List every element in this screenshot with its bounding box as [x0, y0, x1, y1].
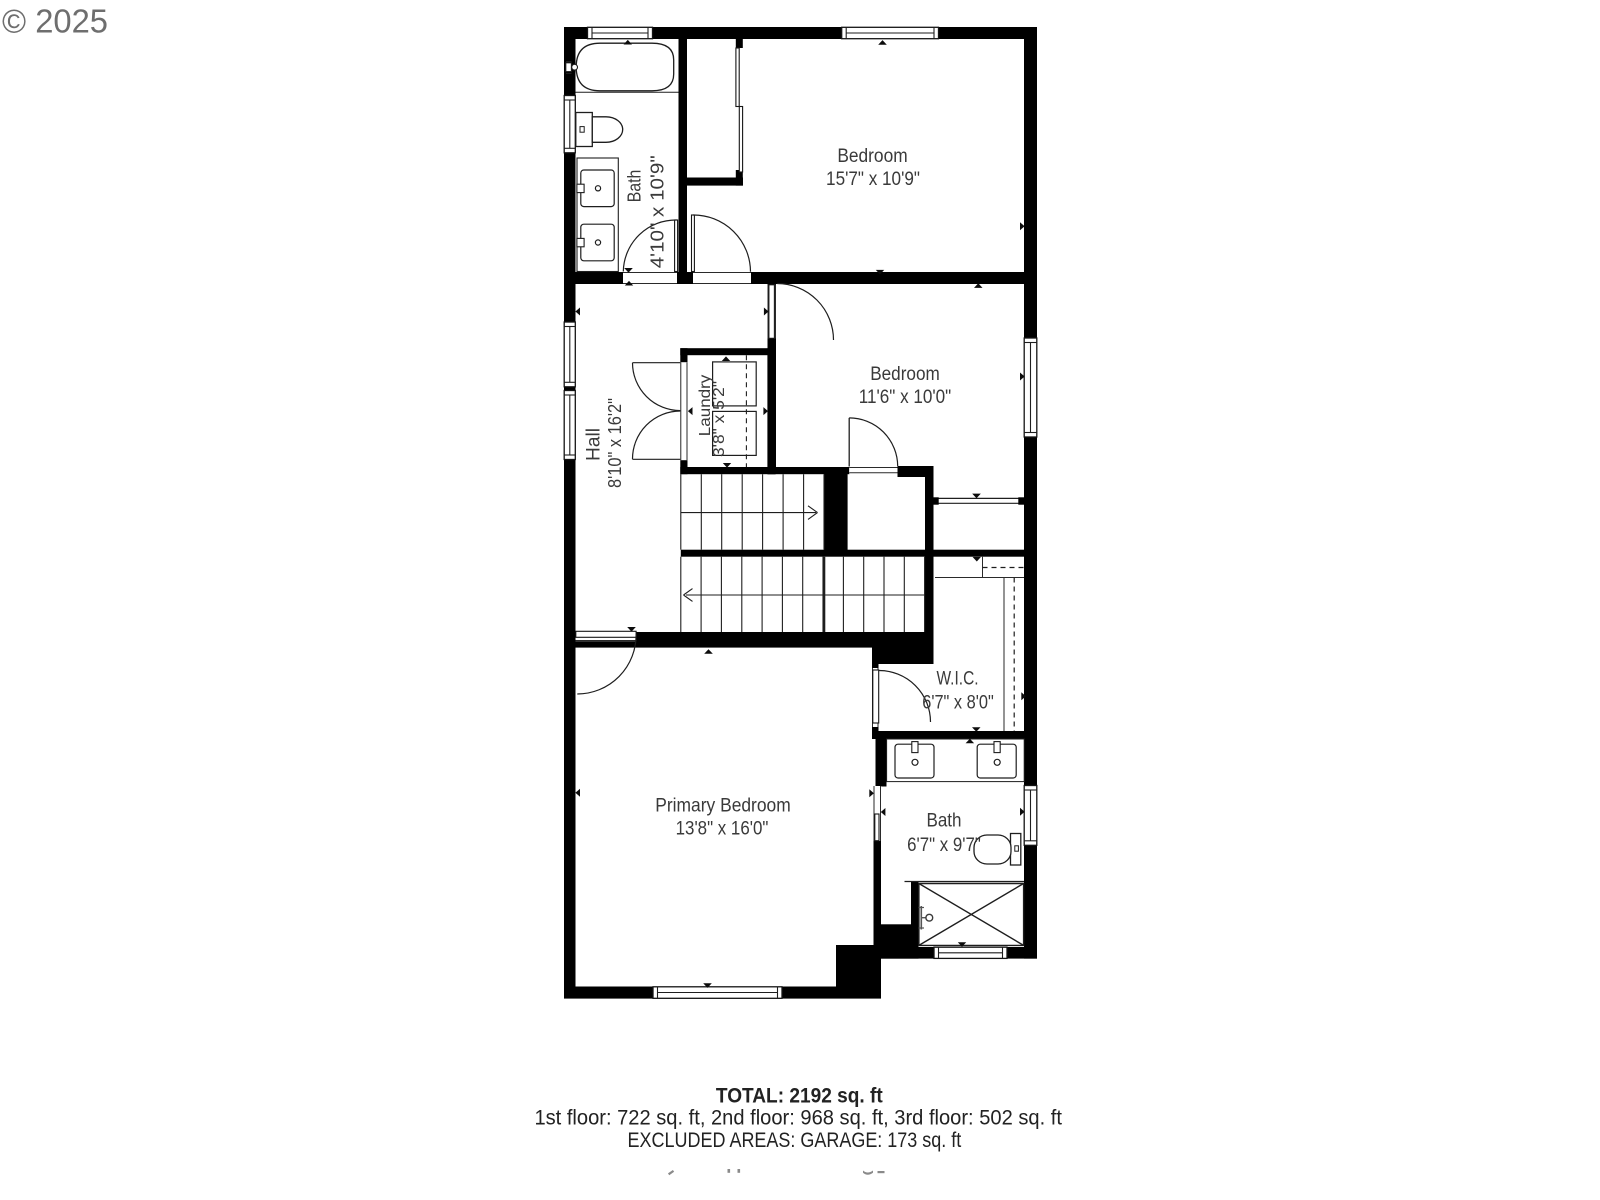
svg-text:13'8" x 16'0": 13'8" x 16'0" [676, 819, 769, 840]
svg-text:Hall: Hall [584, 428, 605, 461]
svg-text:11'6" x 10'0": 11'6" x 10'0" [859, 387, 952, 408]
svg-text:15'7" x 10'9": 15'7" x 10'9" [826, 169, 920, 190]
svg-text:Bedroom: Bedroom [870, 364, 940, 385]
svg-text:EXCLUDED AREAS: GARAGE: 173 sq: EXCLUDED AREAS: GARAGE: 173 sq. ft [628, 1129, 962, 1152]
svg-text:Bath: Bath [625, 170, 645, 203]
svg-text:Primary Bedroom: Primary Bedroom [655, 796, 791, 817]
svg-text:4'10" x 10'9": 4'10" x 10'9" [648, 155, 668, 268]
svg-text:3'8" x 5'2": 3'8" x 5'2" [711, 381, 728, 457]
svg-text:W.I.C.: W.I.C. [936, 669, 978, 690]
svg-text:TOTAL: 2192 sq. ft: TOTAL: 2192 sq. ft [716, 1085, 883, 1108]
svg-text:6'7" x 8'0": 6'7" x 8'0" [922, 693, 994, 714]
svg-text:Bath: Bath [927, 811, 962, 832]
svg-text:8'10" x 16'2": 8'10" x 16'2" [605, 398, 625, 488]
svg-text:Bedroom: Bedroom [837, 146, 907, 167]
svg-text:1st floor: 722 sq. ft, 2nd flo: 1st floor: 722 sq. ft, 2nd floor: 968 sq… [534, 1106, 1062, 1129]
svg-text:© 2025: © 2025 [2, 3, 108, 40]
svg-text:6'7" x 9'7": 6'7" x 9'7" [907, 835, 981, 856]
